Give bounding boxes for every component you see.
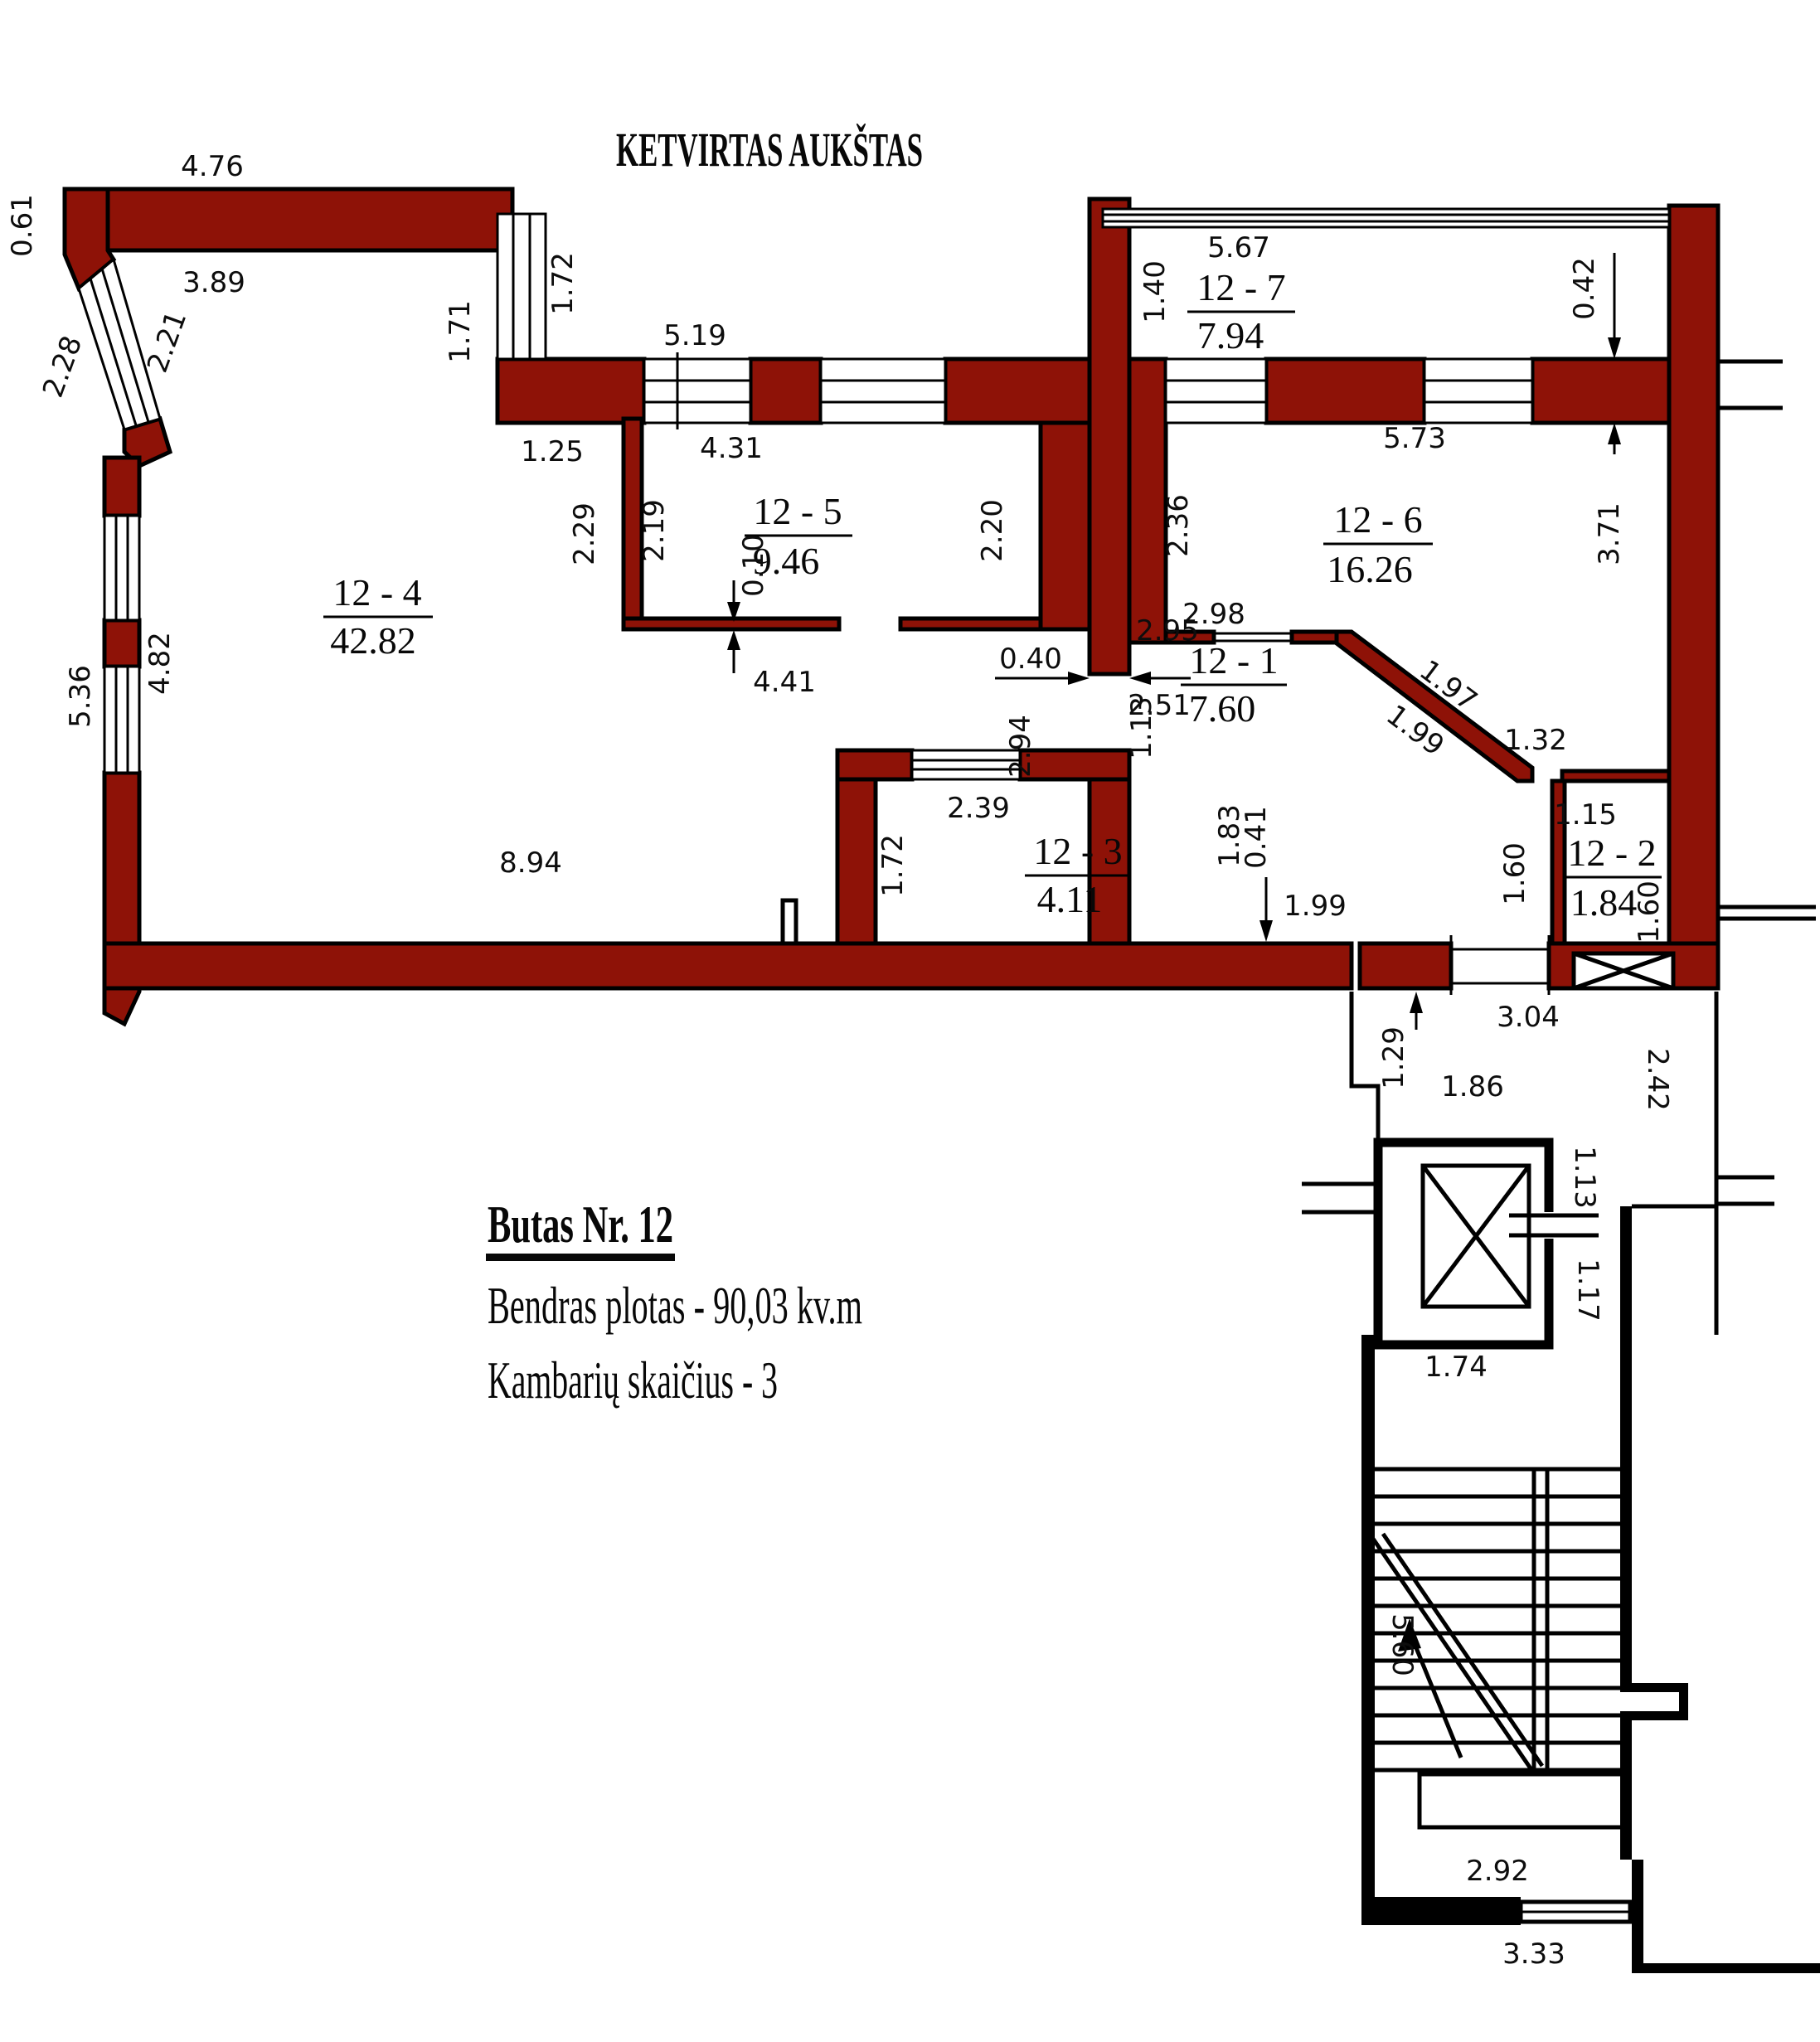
stair-wall-left [1361,1335,1375,1925]
dim-stair-len: 5.60 [1386,1613,1419,1676]
room-id-12-2: 12 - 2 [1567,832,1656,874]
dim-r5-right-h: 2.20 [976,499,1009,562]
stair-wall-right [1620,1206,1632,1683]
room-id-12-7: 12 - 7 [1196,266,1285,308]
band-window-4 [1424,359,1532,423]
dim-hall-right-h: 1.60 [1498,842,1531,905]
wall-left-2 [104,620,139,667]
dim-r5-bottom: 4.41 [753,666,816,699]
room-id-12-6: 12 - 6 [1333,498,1422,541]
dim-left-win-upper: 4.82 [143,632,177,695]
wall-right [1669,206,1718,988]
band-window-2 [821,359,945,423]
dim-hall-top: 2.95 [1136,614,1199,648]
dim-r6-width: 5.73 [1383,422,1446,455]
wall-niche [497,359,644,423]
dim-r7-width: 5.67 [1207,231,1270,264]
room-area-12-7: 7.94 [1197,314,1264,357]
left-window-2 [104,667,139,773]
dim-door-wall: 0.40 [999,643,1062,676]
band-window-3 [1166,359,1266,423]
band-window-1 [644,359,750,423]
dim-niche-h: 2.29 [568,502,601,565]
room-id-12-1: 12 - 1 [1189,639,1278,681]
r7-window [1103,209,1669,227]
dim-thin-wall: 0.10 [737,534,770,597]
dim-left-win-outer: 5.36 [64,665,97,728]
wall-band-3 [1266,359,1424,423]
dim-stair-w: 2.92 [1466,1855,1529,1888]
dim-hall-h: 2.94 [1004,715,1037,778]
wall-bottom-b [1360,943,1451,988]
dim-entry-w: 1.99 [1284,890,1347,923]
wall-left-3 [104,773,139,947]
info-room-count: Kambarių skaičius - 3 [488,1351,778,1409]
dim-corr-w: 1.86 [1441,1070,1504,1103]
dim-r7-left-h: 1.40 [1138,260,1172,323]
info-block: Butas Nr. 12 Bendras plotas - 90,03 kv.m… [486,1195,862,1409]
dim-corr-top: 3.04 [1497,1001,1560,1034]
dim-lobby-w: 0.41 [1240,806,1273,869]
dim-corr-right: 2.42 [1641,1048,1674,1111]
dim-win-right: 1.72 [546,252,580,315]
dim-r3-top: 2.39 [947,792,1010,825]
dim-corner-left: 0.61 [6,194,39,257]
dim-corr-step: 1.29 [1377,1026,1410,1089]
wall-band-4 [1532,359,1669,423]
room-area-12-3: 4.11 [1037,878,1103,920]
wall-band-1 [750,359,821,423]
room-id-12-5: 12 - 5 [753,490,842,532]
dim-r3-left-h: 1.72 [876,834,910,897]
stairwell-block [1302,992,1820,1973]
dim-r2-top: 1.15 [1554,798,1617,832]
radiator-notch [783,900,796,943]
dim-r5-width: 4.31 [700,432,763,465]
floor-plan-page: KETVIRTAS AUKŠTAS 12 - 4 42.82 12 - 5 9.… [0,0,1820,2042]
info-apartment: Butas Nr. 12 [488,1195,673,1254]
dim-r6-left-h: 2.36 [1162,494,1195,557]
dim-wall-seg: 1.25 [521,435,584,468]
dim-r4-top: 3.89 [182,266,245,299]
room-area-12-6: 16.26 [1327,548,1413,590]
dim-elev-top: 1.13 [1568,1146,1601,1209]
party-wall-ticks [1716,361,1816,1204]
stair-landing [1420,1774,1627,1827]
dim-elev-bottom: 1.74 [1424,1351,1488,1384]
room-area-12-2: 1.84 [1570,881,1638,924]
dim-top-width: 4.76 [181,150,244,183]
room-area-12-4: 42.82 [330,619,416,662]
wall-bottom-a [104,943,1352,988]
page-title: KETVIRTAS AUKŠTAS [616,123,923,177]
room-area-12-1: 7.60 [1189,687,1256,730]
wall-left-foot [104,987,139,1024]
dim-bay-inner: 2.21 [141,307,193,377]
info-total-area: Bendras plotas - 90,03 kv.m [488,1276,862,1335]
dim-elev-side: 1.17 [1571,1259,1604,1322]
wall-r6-bottom-b [1292,632,1342,643]
dim-hall-mid: 2.51 [1128,689,1191,722]
dim-r6-corner: 1.32 [1504,724,1567,757]
dim-r2-right-h: 1.60 [1633,880,1666,943]
pier-window [497,214,546,359]
dim-band-top: 5.19 [663,319,726,352]
wall-r2-top [1562,771,1669,781]
dim-r4-bottom: 8.94 [499,846,562,880]
dim-band-thk: 0.42 [1568,257,1601,320]
wall-top [108,189,512,250]
wall-r3-top-a [837,750,912,779]
dim-win-left: 1.71 [444,300,477,363]
wall-center-upper [1090,199,1129,674]
wall-r5-bottom-b [900,618,1052,629]
wall-r5-bottom-a [624,618,839,629]
dim-r6-right-h: 3.71 [1593,502,1626,565]
dim-r5-left-h: 2.19 [638,499,671,562]
room-id-12-4: 12 - 4 [332,571,421,614]
room-id-12-3: 12 - 3 [1033,830,1122,872]
left-window-1 [104,516,139,620]
wall-left-1 [104,458,139,516]
apartment-walls [65,189,1718,1024]
floor-plan-drawing: KETVIRTAS AUKŠTAS 12 - 4 42.82 12 - 5 9.… [0,0,1820,2042]
stair-wall-bottom [1361,1897,1521,1925]
dim-bay-outer: 2.28 [36,332,89,402]
dim-stair-bottom: 3.33 [1502,1938,1565,1971]
wall-r6-left [1129,359,1166,643]
